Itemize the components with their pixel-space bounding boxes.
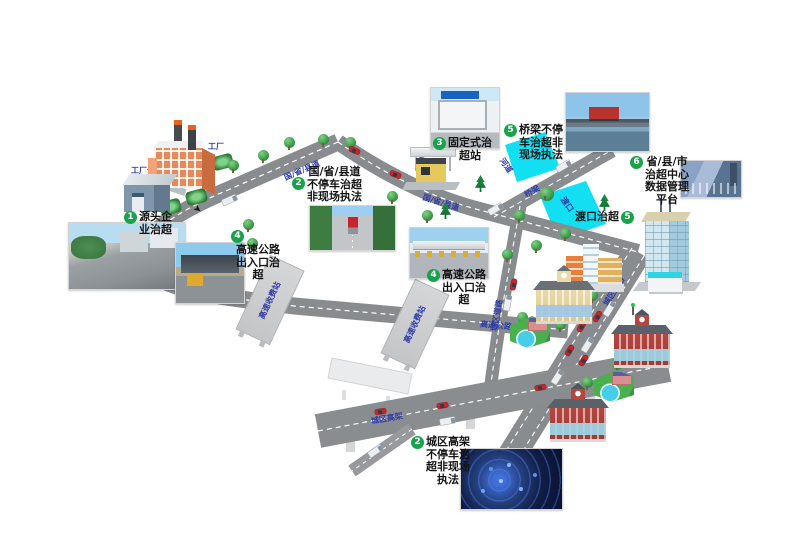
annotation-text: 高速公路 出入口治 超	[442, 269, 486, 307]
annotation-text: 源头企 业治超	[139, 211, 172, 236]
shop-building	[648, 272, 682, 292]
annotation-text: 城区高架 不停车治 超非现场 执法	[426, 436, 470, 486]
tree-icon	[284, 137, 295, 148]
building-block	[598, 258, 622, 284]
diagram-canvas: 高速收费站 高速收费站 国/省/县道 国/省/县道 高速公路 城区高架 城区道路…	[0, 0, 800, 543]
annotation-fixed-station: 3 固定式治 超站	[433, 137, 492, 162]
photo-bridge	[565, 92, 650, 152]
school-building	[550, 408, 606, 442]
annotation-highway-exit-east: 4 高速公路 出入口治 超	[427, 269, 486, 307]
tree-icon	[243, 219, 254, 230]
badge-2: 2	[411, 436, 424, 449]
tree-icon	[540, 187, 554, 201]
wall	[124, 185, 170, 212]
annotation-urban-elevated: 2 城区高架 不停车治 超非现场 执法	[411, 436, 470, 486]
annotation-text: 固定式治 超站	[448, 137, 492, 162]
viaduct-leg	[342, 390, 346, 400]
tree-icon	[228, 160, 239, 171]
annotation-text: 省/县/市 治超中心 数据管理 平台	[645, 156, 689, 206]
school-building	[536, 290, 592, 324]
badge-5: 5	[504, 124, 517, 137]
annotation-ferry: 渡口治超 5	[575, 211, 634, 224]
building-block	[583, 244, 599, 284]
photo-data-center	[680, 160, 742, 198]
annotation-source: 1 源头企 业治超	[124, 211, 172, 236]
tree-icon	[502, 249, 513, 260]
traffic-light-icon	[632, 306, 634, 315]
tree-icon	[258, 150, 269, 161]
tree-icon	[318, 134, 329, 145]
badge-4: 4	[427, 269, 440, 282]
tree-icon	[560, 228, 571, 239]
school-building	[614, 334, 670, 368]
tree-icon	[582, 377, 593, 388]
toll-gate-label: 高速收费站	[257, 280, 284, 321]
annotation-text: 桥梁不停 车治超非 现场执法	[519, 124, 563, 162]
annotation-highway-exit-west: 4 高速公路 出入口治 超	[231, 230, 280, 282]
tree-icon	[531, 240, 542, 251]
annotation-text: 渡口治超	[575, 211, 619, 224]
photo-urban-enforcement	[460, 448, 563, 510]
annotation-text: 国/省/县道 不停车治超 非现场执法	[307, 166, 362, 204]
annotation-text: 高速公路 出入口治 超	[236, 244, 280, 282]
badge-2: 2	[292, 177, 305, 190]
badge-1: 1	[124, 211, 137, 224]
tree-icon	[422, 210, 433, 221]
roof	[153, 141, 205, 148]
badge-4: 4	[231, 230, 244, 243]
viaduct-ramp-deck	[328, 358, 412, 394]
wall-side	[202, 148, 215, 195]
annotation-road-nonstop: 2 国/省/县道 不停车治超 非现场执法	[292, 166, 362, 204]
photo-provincial-road	[309, 205, 396, 251]
badge-5: 5	[621, 211, 634, 224]
roof	[122, 174, 178, 185]
badge-3: 3	[433, 137, 446, 150]
tree-icon	[514, 210, 525, 221]
annotation-data-center: 6 省/县/市 治超中心 数据管理 平台	[630, 156, 689, 206]
badge-6: 6	[630, 156, 643, 169]
toll-gate-label: 高速收费站	[402, 304, 429, 345]
tree-icon	[387, 191, 398, 202]
annotation-bridge-nonstop: 5 桥梁不停 车治超非 现场执法	[504, 124, 563, 162]
